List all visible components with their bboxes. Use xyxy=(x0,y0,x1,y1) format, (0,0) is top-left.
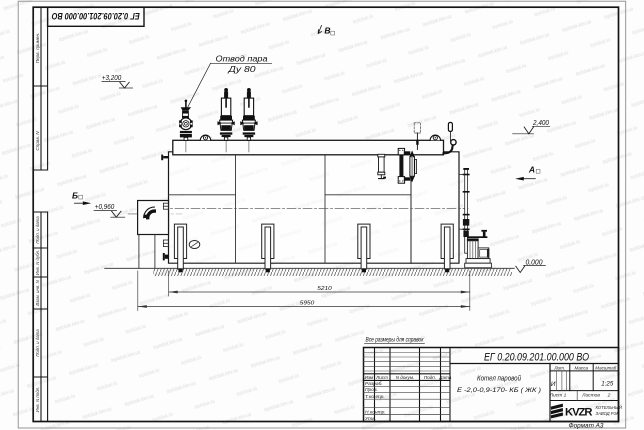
svg-text:Е -2,0-0,9-170- КБ ( ЖК ): Е -2,0-0,9-170- КБ ( ЖК ) xyxy=(457,387,541,394)
svg-text:А: А xyxy=(528,165,535,175)
svg-text:Изм: Изм xyxy=(365,375,374,380)
svg-text:N докум.: N докум. xyxy=(396,375,415,380)
svg-text:Взам. инв. N: Взам. инв. N xyxy=(35,279,40,305)
svg-text:В: В xyxy=(324,26,330,36)
svg-text:Масса: Масса xyxy=(575,366,589,371)
svg-text:Инв. N дубл.: Инв. N дубл. xyxy=(35,250,40,275)
svg-text:Б: Б xyxy=(72,191,78,201)
svg-text:КОТЕЛЬНЫЙ: КОТЕЛЬНЫЙ xyxy=(596,405,622,410)
svg-text:Котел паровой: Котел паровой xyxy=(477,374,521,383)
svg-text:Т.контр.: Т.контр. xyxy=(365,394,385,400)
svg-text:Перв. примен.: Перв. примен. xyxy=(35,33,40,64)
svg-text:Лист: Лист xyxy=(375,375,388,380)
svg-text:5950: 5950 xyxy=(300,301,315,307)
svg-text:Листов: Листов xyxy=(581,393,600,399)
svg-text:Инв. N подл.: Инв. N подл. xyxy=(35,387,40,413)
svg-text:Подп.: Подп. xyxy=(424,375,436,380)
svg-text:Масштаб: Масштаб xyxy=(595,366,616,371)
svg-text:1:25: 1:25 xyxy=(601,381,614,388)
svg-text:И: И xyxy=(551,381,556,388)
svg-text:Подп. и дата: Подп. и дата xyxy=(35,329,40,357)
svg-text:ЕГ 0.20.09.201.00.000 ВО: ЕГ 0.20.09.201.00.000 ВО xyxy=(484,352,589,364)
svg-text:Дата: Дата xyxy=(438,375,452,380)
svg-text:2,400: 2,400 xyxy=(532,120,549,127)
svg-text:2: 2 xyxy=(607,393,611,399)
svg-text:Лист 1: Лист 1 xyxy=(549,393,567,399)
svg-text:ЕГ 0.20.09.201.00.000 ВО: ЕГ 0.20.09.201.00.000 ВО xyxy=(52,11,140,21)
svg-text:KVZR: KVZR xyxy=(565,407,592,419)
svg-text:Отвод пара: Отвод пара xyxy=(216,54,268,64)
svg-text:5210: 5210 xyxy=(317,286,332,292)
svg-text:Пров.: Пров. xyxy=(365,387,378,393)
svg-text:ЗАВОД РЭП: ЗАВОД РЭП xyxy=(596,411,621,416)
svg-text:Справ. N: Справ. N xyxy=(35,131,40,151)
svg-text:Утв.: Утв. xyxy=(365,416,376,422)
svg-text:Лит.: Лит. xyxy=(553,366,565,371)
svg-text:Ду 80: Ду 80 xyxy=(227,64,256,74)
svg-text:Разраб.: Разраб. xyxy=(365,381,383,387)
svg-text:+0,960: +0,960 xyxy=(95,204,115,211)
svg-text:Подп. и дата: Подп. и дата xyxy=(35,216,40,244)
svg-text:Все размеры для справок: Все размеры для справок xyxy=(366,336,425,344)
svg-text:Н.контр.: Н.контр. xyxy=(365,409,386,415)
svg-text:Формат А3: Формат А3 xyxy=(569,423,604,430)
svg-text:+3,200: +3,200 xyxy=(102,75,122,82)
